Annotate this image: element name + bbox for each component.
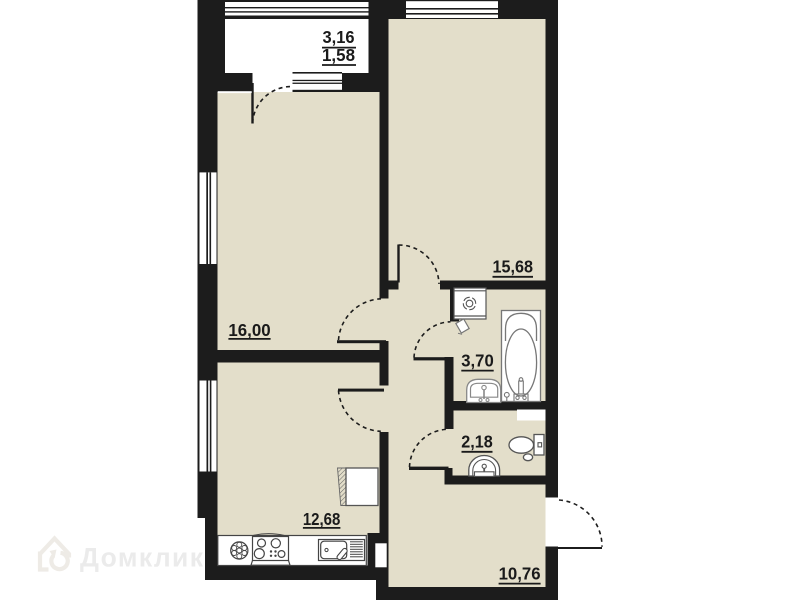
svg-text:1,58: 1,58	[322, 45, 355, 65]
svg-text:Домклик: Домклик	[80, 543, 204, 573]
svg-text:15,68: 15,68	[493, 257, 534, 277]
svg-text:12,68: 12,68	[303, 509, 341, 529]
svg-text:10,76: 10,76	[499, 564, 541, 584]
svg-text:3,70: 3,70	[461, 351, 493, 371]
svg-text:2,18: 2,18	[461, 431, 493, 451]
svg-text:16,00: 16,00	[228, 320, 270, 340]
